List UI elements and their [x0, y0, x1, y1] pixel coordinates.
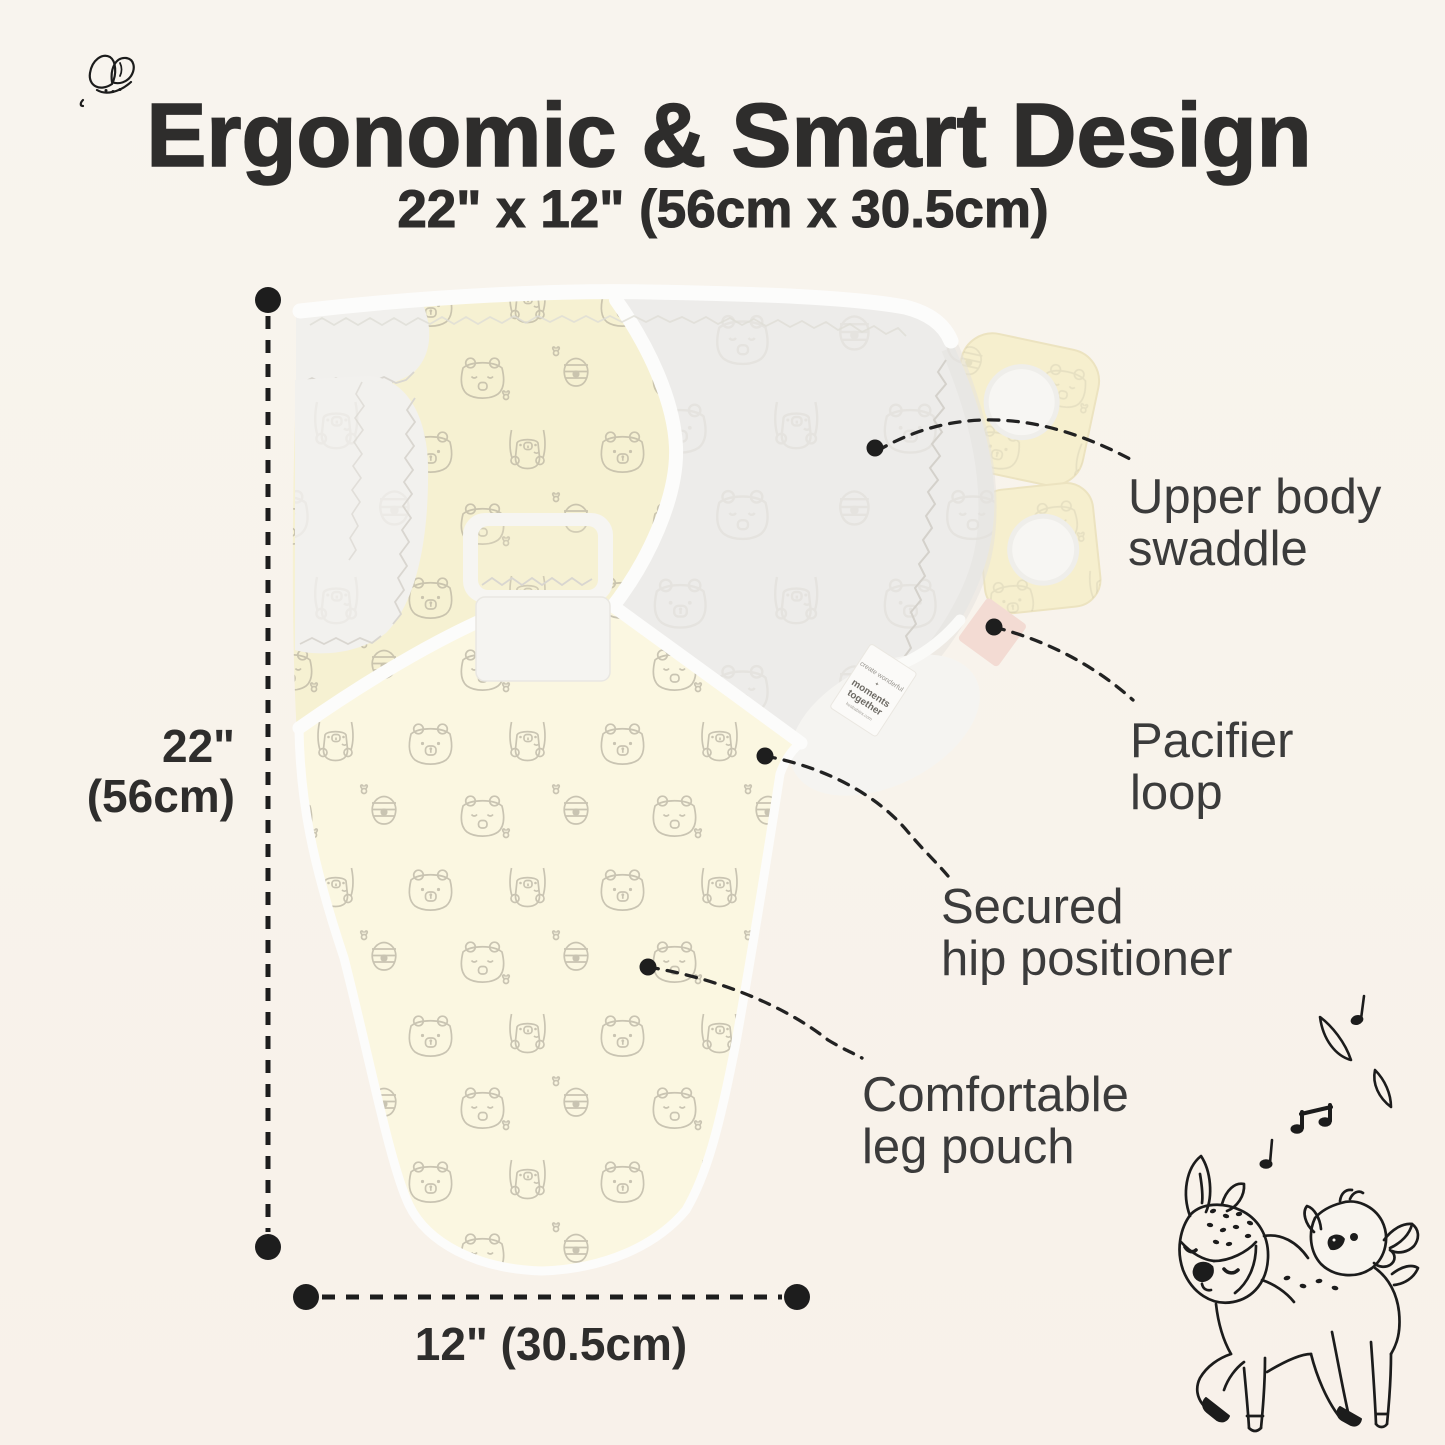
svg-text:Upper body: Upper body: [1128, 470, 1382, 524]
svg-text:22" x 12" (56cm x 30.5cm): 22" x 12" (56cm x 30.5cm): [397, 180, 1048, 239]
svg-text:swaddle: swaddle: [1128, 522, 1308, 576]
svg-text:loop: loop: [1130, 766, 1223, 820]
svg-text:12" (30.5cm): 12" (30.5cm): [415, 1318, 687, 1370]
svg-text:Comfortable: Comfortable: [862, 1068, 1129, 1122]
svg-text:leg pouch: leg pouch: [862, 1120, 1075, 1174]
svg-text:Secured: Secured: [941, 880, 1124, 934]
svg-text:Pacifier: Pacifier: [1130, 714, 1293, 768]
svg-text:hip positioner: hip positioner: [941, 932, 1232, 986]
svg-text:Ergonomic & Smart Design: Ergonomic & Smart Design: [146, 86, 1311, 186]
svg-text:22": 22": [162, 720, 235, 772]
svg-text:(56cm): (56cm): [87, 770, 235, 822]
